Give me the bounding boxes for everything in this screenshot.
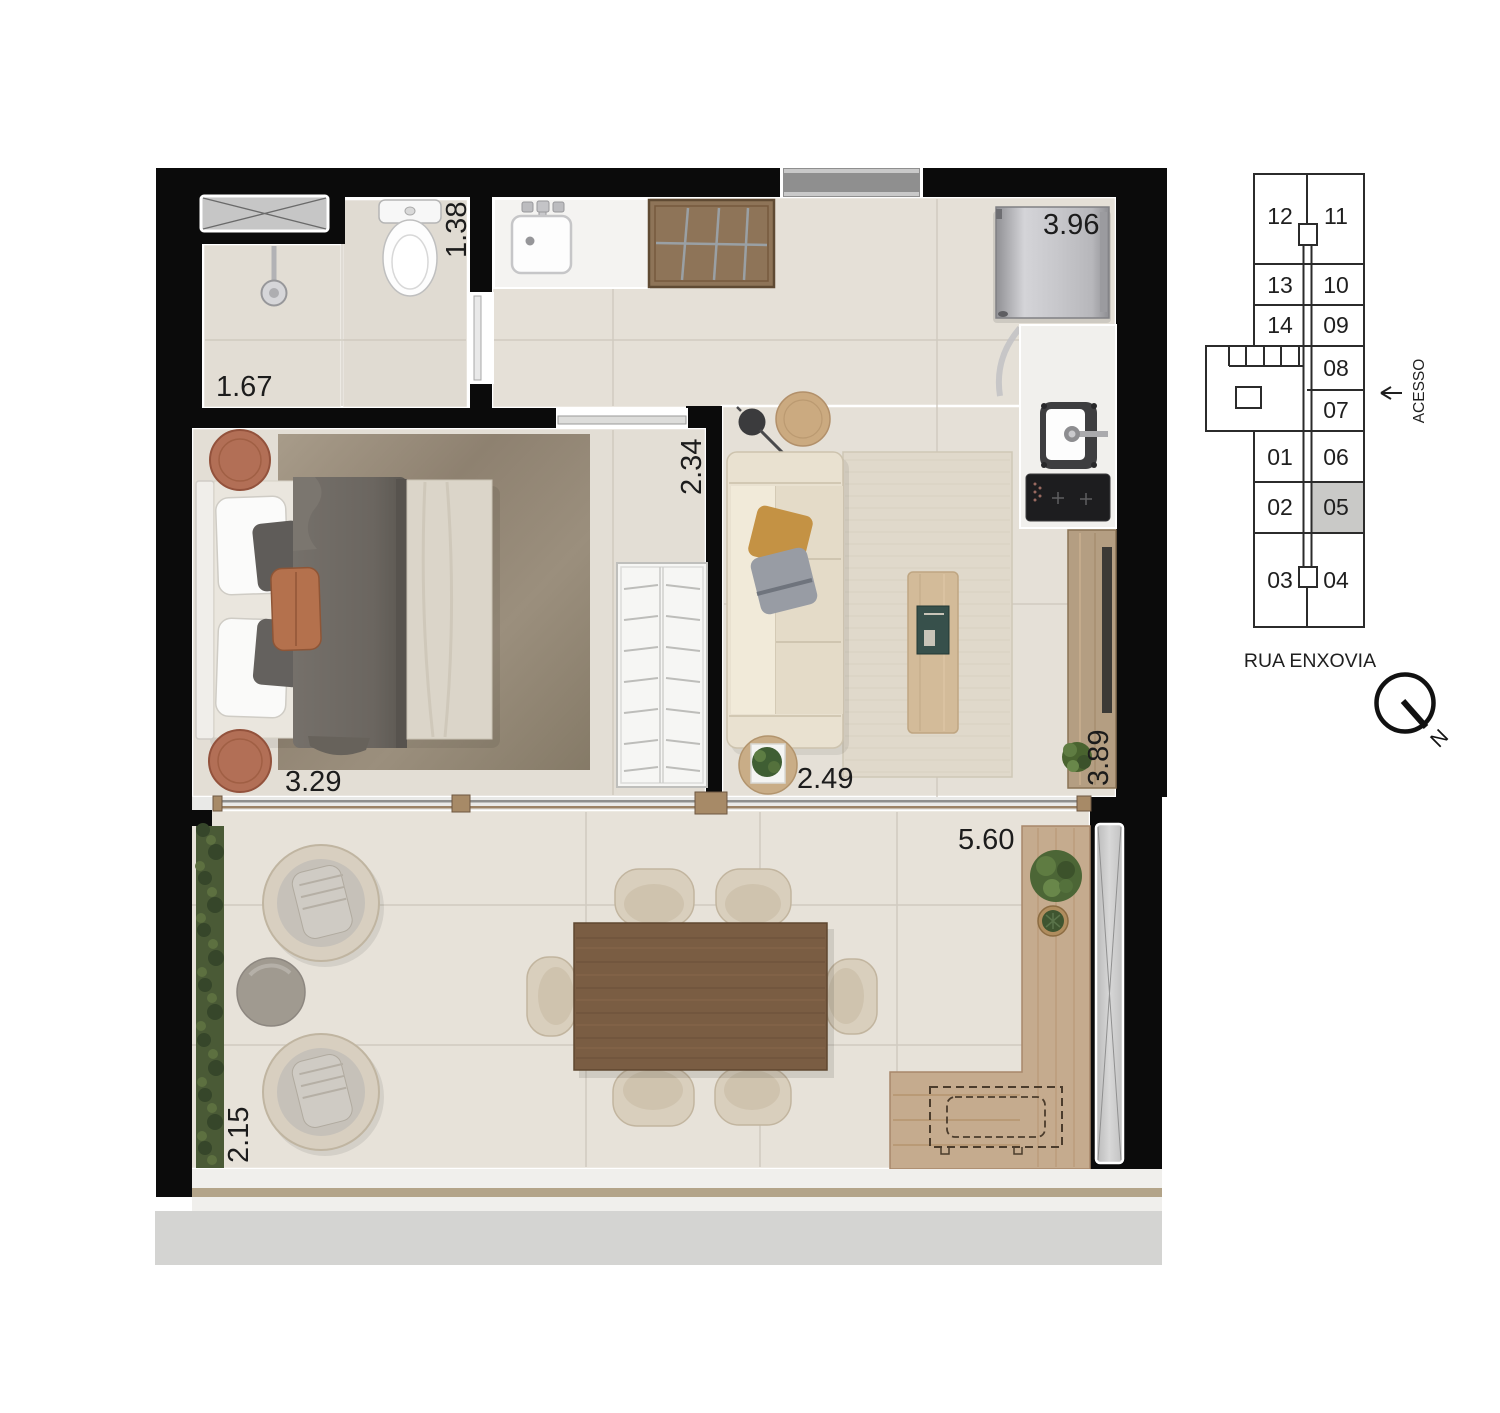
svg-text:02: 02: [1267, 494, 1293, 520]
svg-text:08: 08: [1323, 355, 1349, 381]
svg-text:1.67: 1.67: [216, 371, 272, 403]
svg-text:13: 13: [1267, 272, 1293, 298]
svg-text:ACESSO: ACESSO: [1411, 359, 1428, 424]
svg-text:06: 06: [1323, 444, 1349, 470]
svg-text:3.89: 3.89: [1083, 730, 1115, 786]
svg-text:03: 03: [1267, 567, 1293, 593]
svg-text:2.49: 2.49: [797, 763, 853, 795]
svg-text:RUA ENXOVIA: RUA ENXOVIA: [1244, 650, 1376, 672]
svg-text:2.34: 2.34: [676, 439, 708, 495]
svg-text:1.38: 1.38: [441, 202, 473, 258]
svg-text:09: 09: [1323, 312, 1349, 338]
svg-text:07: 07: [1323, 397, 1349, 423]
svg-text:12: 12: [1267, 203, 1293, 229]
svg-text:14: 14: [1267, 312, 1293, 338]
svg-text:3.96: 3.96: [1043, 209, 1099, 241]
svg-text:2.15: 2.15: [223, 1107, 255, 1163]
svg-text:5.60: 5.60: [958, 824, 1014, 856]
svg-text:05: 05: [1323, 494, 1349, 520]
svg-text:04: 04: [1323, 567, 1349, 593]
svg-text:11: 11: [1324, 203, 1348, 229]
svg-text:N: N: [1425, 724, 1452, 751]
svg-text:01: 01: [1267, 444, 1293, 470]
svg-text:3.29: 3.29: [285, 766, 341, 798]
svg-text:10: 10: [1323, 272, 1349, 298]
